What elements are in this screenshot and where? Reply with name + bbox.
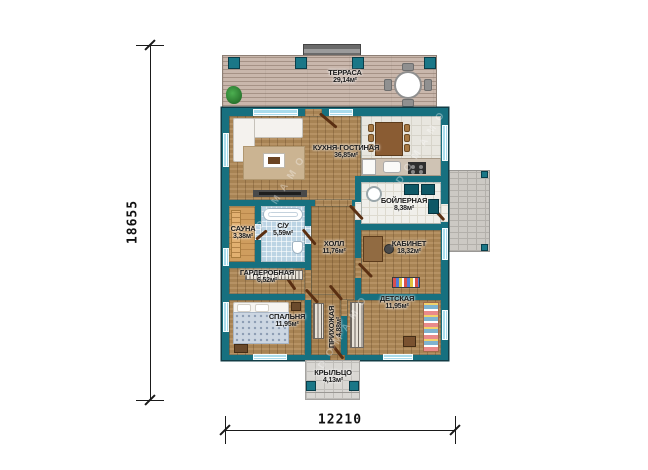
- dining-chair: [368, 134, 374, 142]
- dimension-height-label: 18655: [126, 200, 141, 244]
- floor-plan-canvas: DOMAMO DOMAMO DOMAMO ТЕРРАСА 29,14м² КУХ…: [0, 0, 648, 470]
- boiler-equipment: [404, 184, 419, 195]
- children-wardrobe: [350, 302, 364, 348]
- children-bed: [423, 302, 439, 352]
- window: [253, 354, 287, 360]
- room-name: КРЫЛЬЦО: [314, 368, 352, 377]
- window: [223, 133, 229, 167]
- room-label-kitchen-living: КУХНЯ-ГОСТИНАЯ 36,85м²: [313, 144, 379, 160]
- room-area: 3,38м²: [231, 233, 256, 241]
- room-label-terrace: ТЕРРАСА 29,14м²: [328, 69, 361, 85]
- room-area: 36,85м²: [313, 152, 379, 160]
- children-table: [403, 336, 416, 347]
- window: [223, 302, 229, 332]
- window: [223, 248, 229, 266]
- room-label-entry: ПРИХОЖАЯ 4,88м²: [328, 306, 344, 348]
- room-name: ПРИХОЖАЯ: [327, 306, 336, 348]
- terrace-post: [424, 57, 436, 69]
- room-name: ТЕРРАСА: [328, 68, 361, 77]
- room-label-sauna: САУНА 3,38м²: [231, 225, 256, 241]
- room-name: ГАРДЕРОБНАЯ: [240, 268, 294, 277]
- room-label-bedroom: СПАЛЬНЯ 11,95м²: [269, 313, 305, 329]
- porch-step: [305, 392, 360, 393]
- window: [383, 354, 413, 360]
- terrace-chair: [402, 63, 414, 71]
- dimension-width-label: 12210: [318, 413, 362, 428]
- room-name: ХОЛЛ: [324, 239, 344, 248]
- room-area: 4,88м²: [336, 306, 344, 348]
- terrace-table: [394, 71, 422, 99]
- room-name: СПАЛЬНЯ: [269, 312, 305, 321]
- side-porch-post: [481, 244, 488, 251]
- dining-chair: [368, 124, 374, 132]
- room-area: 4,13м²: [314, 377, 352, 385]
- dining-chair: [404, 124, 410, 132]
- room-name: САУНА: [231, 224, 256, 233]
- room-label-children: ДЕТСКАЯ 11,95м²: [380, 295, 414, 311]
- desk: [363, 236, 383, 262]
- side-porch-post: [481, 171, 488, 178]
- side-porch: [448, 170, 490, 252]
- terrace-chair: [424, 79, 432, 91]
- terrace-chair: [402, 99, 414, 107]
- room-area: 5,59м²: [273, 230, 293, 238]
- nightstand: [291, 302, 301, 311]
- boiler-tank: [366, 186, 382, 202]
- tv-stand: [253, 190, 307, 197]
- plant-icon: [226, 86, 242, 104]
- window: [442, 310, 448, 340]
- room-area: 6,52м²: [240, 277, 294, 285]
- dining-chair: [404, 144, 410, 152]
- room-name: С/У: [277, 221, 289, 230]
- room-area: 11,95м²: [269, 321, 305, 329]
- room-label-hall: ХОЛЛ 11,76м²: [322, 240, 345, 256]
- room-label-bathroom: С/У 5,59м²: [273, 222, 293, 238]
- dimension-line-vertical: [150, 45, 151, 400]
- room-label-boiler: БОЙЛЕРНАЯ 8,38м²: [381, 197, 427, 213]
- room-label-porch: КРЫЛЬЦО 4,13м²: [314, 369, 352, 385]
- bookshelf: [392, 277, 420, 288]
- pillow: [255, 304, 269, 312]
- toilet: [292, 241, 303, 254]
- room-area: 18,32м²: [392, 248, 426, 256]
- coffee-table: [263, 153, 285, 168]
- window: [329, 109, 353, 116]
- boiler-equipment: [421, 184, 435, 195]
- window: [442, 228, 448, 260]
- stove: [408, 162, 426, 174]
- opening-cabinet-door: [355, 258, 361, 278]
- room-label-cabinet: КАБИНЕТ 18,32м²: [392, 240, 426, 256]
- dining-chair: [404, 134, 410, 142]
- room-name: ДЕТСКАЯ: [380, 294, 414, 303]
- terrace-post: [295, 57, 307, 69]
- terrace-post: [228, 57, 240, 69]
- room-name: КУХНЯ-ГОСТИНАЯ: [313, 143, 379, 152]
- dresser: [234, 344, 248, 353]
- fridge: [362, 159, 376, 175]
- kitchen-sink: [383, 161, 401, 173]
- room-area: 11,95м²: [380, 303, 414, 311]
- bathtub: [263, 208, 303, 221]
- boiler-equipment: [428, 199, 439, 214]
- dining-table: [375, 122, 403, 156]
- room-label-wardrobe: ГАРДЕРОБНАЯ 6,52м²: [240, 269, 294, 285]
- window: [442, 125, 448, 161]
- pillow: [237, 304, 251, 312]
- entry-cabinet: [313, 303, 324, 339]
- room-name: БОЙЛЕРНАЯ: [381, 196, 427, 205]
- terrace-chair: [384, 79, 392, 91]
- room-area: 11,76м²: [322, 248, 345, 256]
- dimension-line-horizontal: [225, 430, 455, 431]
- room-area: 29,14м²: [328, 77, 361, 85]
- window: [253, 109, 298, 116]
- room-area: 8,38м²: [381, 205, 427, 213]
- opening-living-hall: [315, 200, 352, 206]
- room-name: КАБИНЕТ: [392, 239, 426, 248]
